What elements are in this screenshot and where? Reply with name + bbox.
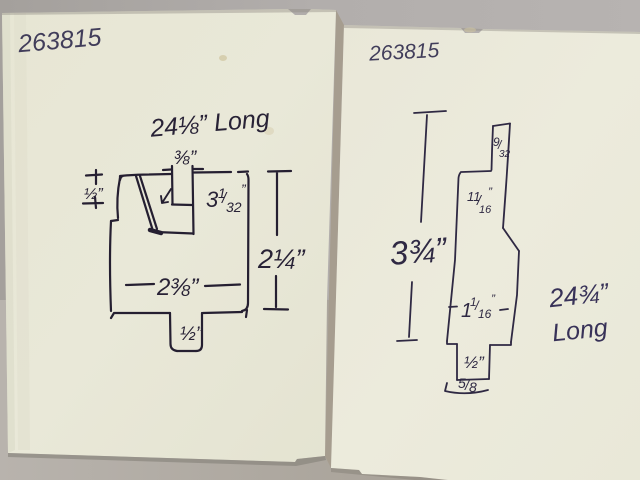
svg-text:8: 8 bbox=[469, 379, 477, 395]
svg-text:⅜”: ⅜” bbox=[174, 148, 198, 169]
svg-text:16: 16 bbox=[478, 307, 492, 321]
svg-text:½”: ½” bbox=[84, 186, 103, 203]
svg-text:2⅜”: 2⅜” bbox=[156, 274, 199, 301]
svg-text:16: 16 bbox=[479, 204, 492, 216]
svg-text:½”: ½” bbox=[180, 324, 204, 345]
svg-text:24¾”: 24¾” bbox=[547, 277, 611, 313]
svg-text:Long: Long bbox=[551, 314, 609, 348]
svg-text:32: 32 bbox=[499, 149, 511, 160]
svg-text:2¼”: 2¼” bbox=[257, 244, 306, 274]
svg-text:½”: ½” bbox=[464, 353, 485, 372]
svg-text:32: 32 bbox=[226, 199, 242, 215]
svg-text:3¾”: 3¾” bbox=[388, 230, 450, 272]
svg-text:263815: 263815 bbox=[368, 39, 441, 66]
